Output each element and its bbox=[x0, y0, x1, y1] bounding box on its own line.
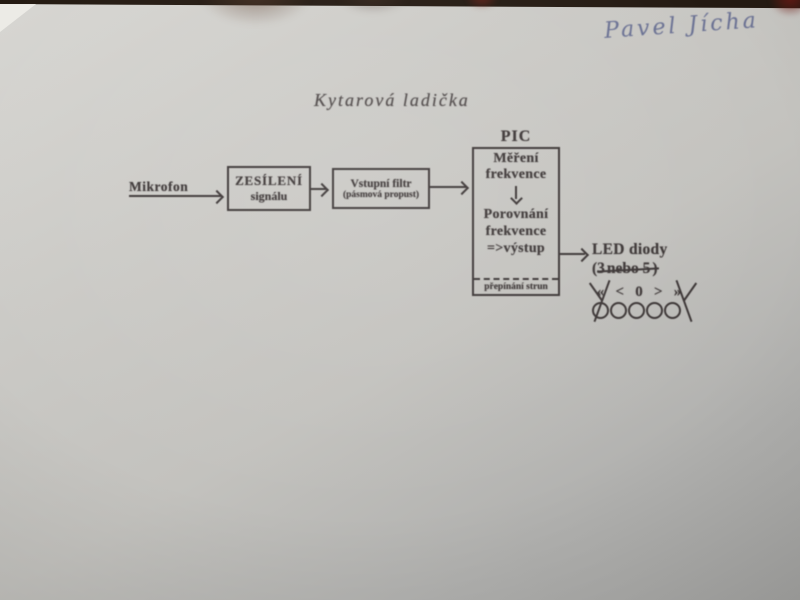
pic-box: Měření frekvence Porovnání frekvence =>v… bbox=[472, 147, 560, 296]
led-circle bbox=[646, 302, 663, 319]
led-count-note: (3nebo 5) bbox=[592, 260, 704, 278]
pic-step2-line1: Porovnání bbox=[484, 206, 549, 223]
led-circle bbox=[610, 302, 627, 319]
diagram-title: Kytarová ladička bbox=[314, 90, 470, 111]
pic-footer-strings-switch: přepínání strun bbox=[474, 278, 558, 294]
photographed-diagram: Pavel Jícha Kytarová ladička Mikrofon ZE… bbox=[0, 0, 800, 600]
down-arrow-icon bbox=[474, 183, 558, 203]
amplifier-box-line1: ZESÍLENÍ bbox=[235, 173, 303, 189]
pic-step1-line1: Měření bbox=[493, 151, 538, 167]
amplifier-box-line2: signálu bbox=[251, 189, 288, 204]
led-count-prefix: (3 bbox=[592, 260, 605, 277]
led-title: LED diody bbox=[592, 241, 704, 259]
led-symbol-in-tune: 0 bbox=[632, 284, 647, 300]
pic-step2-line2: frekvence bbox=[486, 223, 547, 240]
led-diodes-group: LED diody (3nebo 5) « < 0 > » bbox=[592, 241, 704, 319]
right-arrow-icon bbox=[315, 183, 329, 197]
pic-label: PIC bbox=[472, 128, 560, 146]
amplifier-box: ZESÍLENÍ signálu bbox=[227, 166, 311, 211]
mikrofon-label: Mikrofon bbox=[129, 179, 188, 195]
led-symbol-sharp: > bbox=[651, 284, 666, 300]
led-symbol-flat: < bbox=[612, 284, 627, 300]
right-arrow-icon bbox=[575, 248, 589, 262]
led-count-struck-wrap: nebo 5 bbox=[607, 260, 651, 278]
block-diagram: Kytarová ladička Mikrofon ZESÍLENÍ signá… bbox=[0, 0, 800, 600]
pic-step1-line2: frekvence bbox=[486, 167, 547, 183]
pic-step2-line3: =>výstup bbox=[487, 240, 545, 258]
input-filter-box-line1: Vstupní filtr bbox=[350, 178, 411, 190]
input-filter-box-line2: (pásmová propust) bbox=[343, 190, 419, 200]
led-circle bbox=[664, 302, 681, 319]
led-circle bbox=[628, 302, 645, 319]
right-arrow-icon bbox=[455, 181, 469, 195]
input-filter-box: Vstupní filtr (pásmová propust) bbox=[332, 168, 430, 209]
mikrofon-arrow-line bbox=[129, 195, 221, 197]
right-arrow-icon bbox=[210, 190, 224, 204]
